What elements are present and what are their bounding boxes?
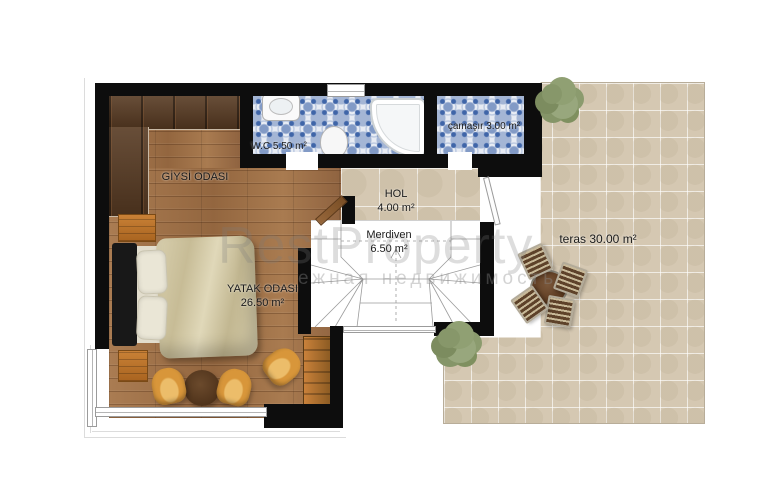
label-hall: HOL 4.00 m²: [363, 187, 429, 216]
pillow: [136, 249, 168, 295]
bush: [542, 84, 562, 104]
door-opening-wc: [286, 152, 318, 170]
wardrobe-top: [109, 96, 241, 130]
nightstand: [118, 214, 156, 242]
room-name: Merdiven: [352, 228, 426, 242]
window-top: [327, 84, 365, 97]
room-name: HOL: [363, 187, 429, 201]
frame-line-bottom-inner: [92, 431, 340, 432]
frame-line-bottom: [84, 437, 346, 438]
window-bottom: [95, 407, 267, 417]
label-laundry: çamaşır 3.00 m²: [437, 120, 531, 133]
terrace-chair: [544, 295, 576, 328]
wall-hall-top-right: [478, 163, 542, 177]
room-name: GİYSİ ODASI: [140, 170, 250, 184]
room-name: teras 30.00 m²: [548, 232, 648, 248]
dresser: [118, 350, 148, 382]
frame-line-left: [84, 78, 85, 438]
door-opening-laundry: [448, 152, 472, 170]
room-area: 6.50 m²: [352, 242, 426, 256]
wall-left: [95, 83, 109, 349]
room-name: W.C 5.50 m²: [246, 140, 312, 153]
coffee-table: [184, 370, 220, 406]
room-name: YATAK ODASI: [205, 282, 320, 296]
pillow: [136, 295, 168, 341]
label-wc: W.C 5.50 m²: [246, 140, 312, 153]
sink-bowl: [269, 98, 293, 115]
room-area: 4.00 m²: [363, 201, 429, 215]
wall-top: [95, 83, 542, 96]
wall-wc-laundry: [424, 94, 437, 156]
bed-headboard: [112, 243, 137, 346]
watermark-subtext: ежная недвижимость: [298, 268, 557, 290]
label-terrace: teras 30.00 m²: [548, 232, 648, 248]
label-stairs: Merdiven 6.50 m²: [352, 228, 426, 257]
room-area: 26.50 m²: [205, 296, 320, 310]
stair-railing: [343, 326, 436, 333]
wall-bedroom-bottom-block: [264, 404, 338, 428]
label-bedroom: YATAK ODASI 26.50 m²: [205, 282, 320, 311]
floor-plan: RestProperty ежная недвижимость GİYSİ OD…: [0, 0, 770, 480]
bush: [438, 328, 460, 348]
label-dressing-room: GİYSİ ODASI: [140, 170, 250, 184]
room-name: çamaşır 3.00 m²: [437, 120, 531, 133]
